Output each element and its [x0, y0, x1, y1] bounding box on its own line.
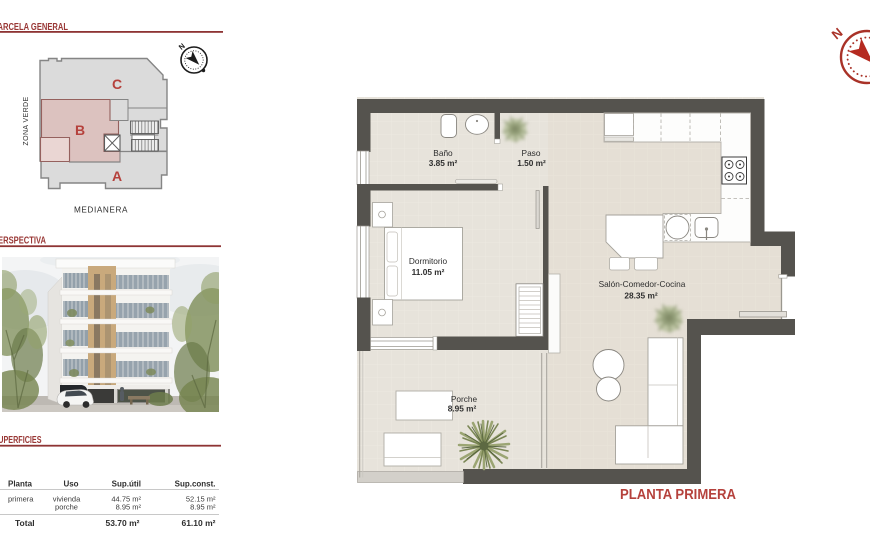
svg-text:Planta: Planta [8, 480, 33, 489]
svg-text:11.05 m²: 11.05 m² [412, 267, 445, 277]
svg-text:Dormitorio: Dormitorio [409, 256, 448, 266]
svg-text:MEDIANERA: MEDIANERA [74, 206, 128, 215]
svg-text:PLANTA PRIMERA: PLANTA PRIMERA [620, 487, 736, 503]
svg-text:A: A [112, 168, 122, 184]
svg-text:Total: Total [15, 518, 35, 528]
svg-text:53.70 m²: 53.70 m² [105, 518, 139, 528]
svg-text:8.95 m²: 8.95 m² [116, 503, 142, 512]
svg-text:Sup.const.: Sup.const. [175, 480, 216, 489]
svg-text:Paso: Paso [522, 148, 541, 158]
svg-text:8.95 m²: 8.95 m² [448, 404, 477, 414]
svg-text:ZONA VERDE: ZONA VERDE [23, 96, 30, 145]
svg-text:N: N [829, 25, 846, 43]
svg-text:primera: primera [8, 495, 34, 504]
svg-text:Porche: Porche [451, 394, 478, 404]
svg-text:1.50 m²: 1.50 m² [517, 158, 546, 168]
svg-text:C: C [112, 76, 122, 92]
svg-text:Baño: Baño [433, 148, 453, 158]
svg-text:61.10 m²: 61.10 m² [181, 518, 215, 528]
svg-text:28.35 m²: 28.35 m² [624, 291, 657, 301]
svg-text:Salón-Comedor-Cocina: Salón-Comedor-Cocina [599, 279, 686, 289]
svg-text:Sup.útil: Sup.útil [112, 480, 141, 489]
svg-text:porche: porche [55, 503, 78, 512]
svg-text:B: B [75, 122, 85, 138]
svg-text:8.95 m²: 8.95 m² [190, 503, 216, 512]
svg-text:Uso: Uso [63, 480, 78, 489]
svg-text:PERSPECTIVA: PERSPECTIVA [0, 235, 46, 247]
svg-text:3.85 m²: 3.85 m² [429, 158, 458, 168]
svg-text:SUPERFICIES: SUPERFICIES [0, 434, 42, 446]
